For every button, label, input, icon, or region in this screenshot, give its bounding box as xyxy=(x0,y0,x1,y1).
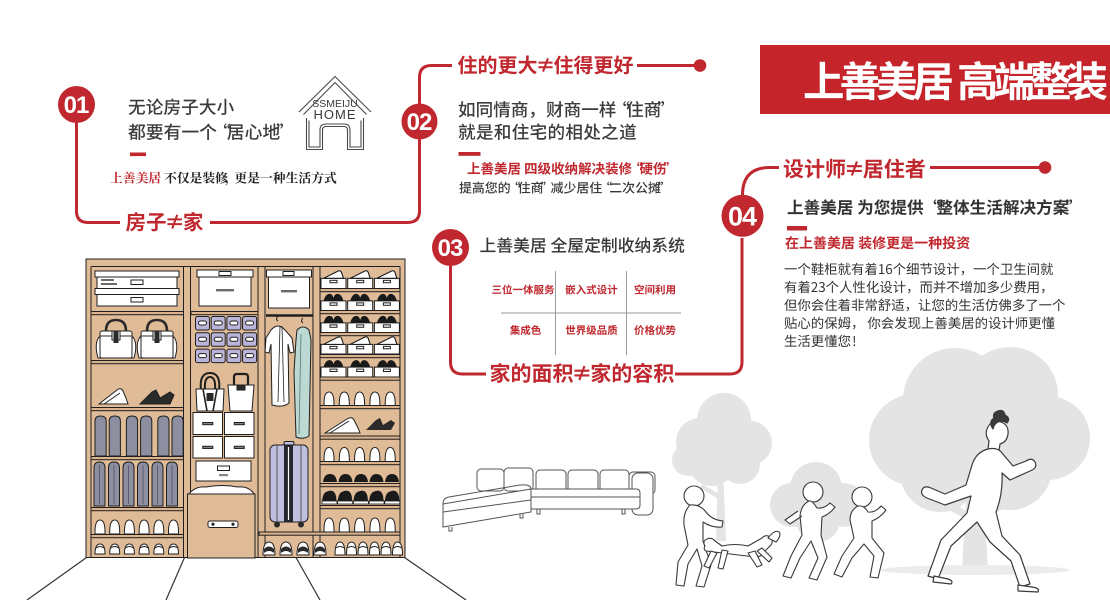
svg-text:03: 03 xyxy=(438,235,463,262)
svg-text:02: 02 xyxy=(407,109,432,136)
svg-text:01: 01 xyxy=(64,92,89,119)
svg-text:HOME: HOME xyxy=(314,107,357,122)
svg-text:04: 04 xyxy=(728,202,757,232)
